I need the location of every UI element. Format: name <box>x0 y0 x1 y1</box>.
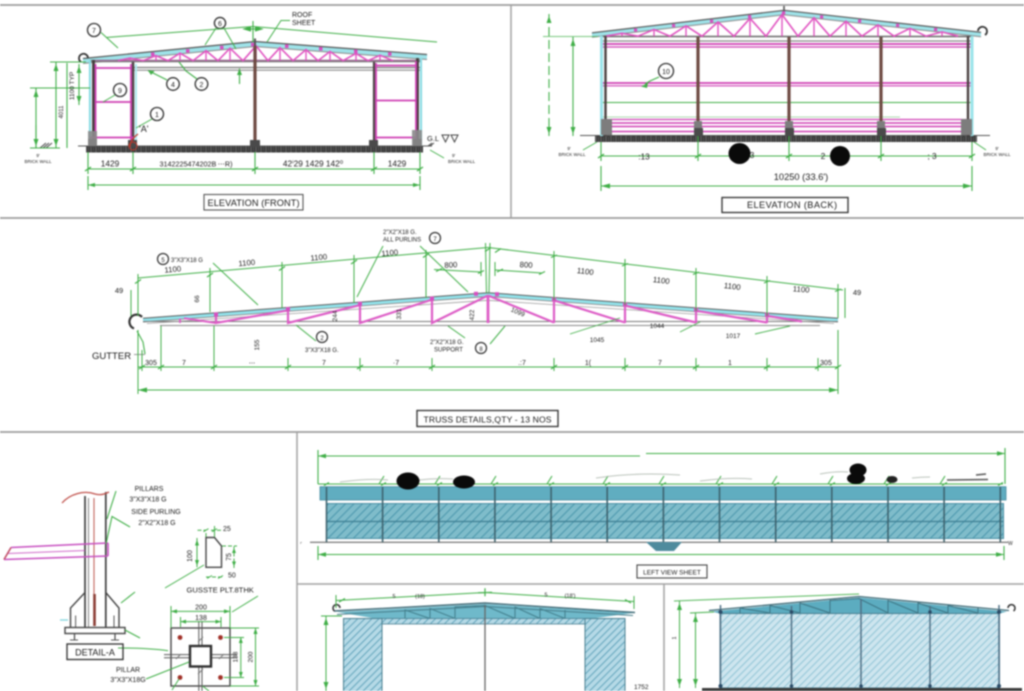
svg-text:200: 200 <box>195 605 207 612</box>
svg-text:·7: ·7 <box>393 360 399 367</box>
svg-text:2"X2"X18 G.: 2"X2"X18 G. <box>383 230 417 236</box>
svg-text:1100 TYP: 1100 TYP <box>69 72 76 100</box>
svg-text:1752: 1752 <box>634 684 649 691</box>
svg-text:PILLARS: PILLARS <box>135 486 164 493</box>
svg-text:1100: 1100 <box>792 284 810 294</box>
svg-text:7: 7 <box>182 360 186 367</box>
svg-text:1429: 1429 <box>388 159 407 169</box>
svg-text:TRUSS DETAILS,QTY - 13 NOS: TRUSS DETAILS,QTY - 13 NOS <box>424 415 552 425</box>
svg-text:PILLAR: PILLAR <box>116 667 140 674</box>
svg-text:200: 200 <box>248 651 255 662</box>
svg-text:422: 422 <box>469 309 476 320</box>
svg-text:50: 50 <box>228 573 236 580</box>
svg-text:BRICK WALL: BRICK WALL <box>558 152 586 157</box>
svg-text:GUSSTE PLT.8THK: GUSSTE PLT.8THK <box>187 586 254 595</box>
svg-text:BRICK WALL: BRICK WALL <box>448 159 476 164</box>
svg-text:LEFT VIEW SHEET: LEFT VIEW SHEET <box>643 570 701 577</box>
svg-text:ALL PURLINS: ALL PURLINS <box>383 238 421 244</box>
svg-text:2: 2 <box>200 82 204 89</box>
svg-text:W: W <box>1008 541 1013 547</box>
svg-text:9': 9' <box>36 153 40 158</box>
svg-text:BRICK WALL: BRICK WALL <box>983 152 1011 157</box>
svg-text:(18'): (18') <box>565 594 576 600</box>
svg-text:155: 155 <box>254 339 261 350</box>
svg-text:244: 244 <box>332 310 339 321</box>
svg-text:.:7: .:7 <box>518 360 526 367</box>
svg-text:10: 10 <box>662 69 670 76</box>
svg-text:1044: 1044 <box>650 323 665 330</box>
svg-text:3"X3"X18 G: 3"X3"X18 G <box>129 497 166 504</box>
svg-text:3: 3 <box>750 151 755 160</box>
svg-text:9: 9 <box>118 88 122 95</box>
svg-text:305: 305 <box>820 360 832 367</box>
svg-text:305: 305 <box>145 360 157 367</box>
svg-text:3"X3"X18 G.: 3"X3"X18 G. <box>305 348 339 354</box>
svg-text:3"X3"X18G: 3"X3"X18G <box>110 677 145 684</box>
svg-text:10250 (33.6'): 10250 (33.6') <box>774 172 829 182</box>
svg-text:331: 331 <box>396 308 403 319</box>
svg-text:66: 66 <box>194 295 201 303</box>
svg-text:SHEET: SHEET <box>292 20 316 27</box>
svg-text:1100: 1100 <box>310 252 328 262</box>
svg-text:; 3: ; 3 <box>927 152 937 161</box>
svg-text:GUTTER: GUTTER <box>92 351 131 362</box>
svg-text:ELEVATION (FRONT): ELEVATION (FRONT) <box>208 198 300 208</box>
svg-text:6: 6 <box>218 21 222 28</box>
svg-text:2"X2"X18 G.: 2"X2"X18 G. <box>430 340 464 346</box>
svg-text:1429: 1429 <box>101 159 120 169</box>
svg-text:3142225474202B ⋯R): 3142225474202B ⋯R) <box>160 160 233 169</box>
svg-text:7: 7 <box>92 28 96 35</box>
svg-text:1: 1 <box>672 636 678 639</box>
svg-text:(18): (18) <box>415 594 425 600</box>
svg-text:1017: 1017 <box>726 333 741 340</box>
svg-text:9': 9' <box>995 146 999 151</box>
svg-text:49: 49 <box>853 288 861 297</box>
svg-text:800: 800 <box>444 260 458 270</box>
svg-text:ELEVATION (BACK): ELEVATION (BACK) <box>747 200 837 210</box>
svg-text:5: 5 <box>544 593 547 599</box>
svg-text:1100: 1100 <box>238 258 256 268</box>
svg-text:'A': 'A' <box>139 124 149 134</box>
svg-text::13: :13 <box>638 153 650 162</box>
svg-text:25: 25 <box>223 526 231 533</box>
svg-text:3"X3"X18 G: 3"X3"X18 G <box>171 258 203 264</box>
svg-text:⋯: ⋯ <box>249 360 256 367</box>
svg-text:G.L: G.L <box>427 134 439 143</box>
svg-text:9': 9' <box>567 146 571 151</box>
svg-text:42ⁱ29 1429 142⁰: 42ⁱ29 1429 142⁰ <box>283 159 343 169</box>
svg-text:800: 800 <box>519 260 533 270</box>
svg-text:SIDE PURLING: SIDE PURLING <box>131 509 180 516</box>
svg-text:2"X2"X18 G: 2"X2"X18 G <box>138 520 175 527</box>
svg-text:DETAIL-A: DETAIL-A <box>75 648 115 658</box>
svg-text:4011: 4011 <box>59 105 65 119</box>
svg-text:9': 9' <box>452 153 456 158</box>
svg-text:ROOF: ROOF <box>292 12 312 19</box>
svg-text:138: 138 <box>233 651 240 662</box>
svg-text:1100: 1100 <box>164 264 182 274</box>
svg-text:1: 1 <box>728 360 732 367</box>
svg-text:49: 49 <box>115 286 123 295</box>
svg-text:100: 100 <box>187 550 194 562</box>
svg-text:1045: 1045 <box>590 337 605 344</box>
svg-text:2: 2 <box>821 152 826 161</box>
svg-text:1: 1 <box>155 112 159 119</box>
svg-text:75: 75 <box>226 553 233 561</box>
svg-text:4: 4 <box>171 82 175 89</box>
svg-text:138: 138 <box>195 615 207 622</box>
svg-text:5: 5 <box>392 594 395 600</box>
svg-text:7: 7 <box>322 360 326 367</box>
svg-text:7: 7 <box>658 360 662 367</box>
svg-text:SUPPORT: SUPPORT <box>434 348 463 354</box>
svg-text:1(: 1( <box>585 360 592 367</box>
svg-text:1100: 1100 <box>381 248 399 258</box>
svg-text:BRICK WALL: BRICK WALL <box>24 159 52 164</box>
